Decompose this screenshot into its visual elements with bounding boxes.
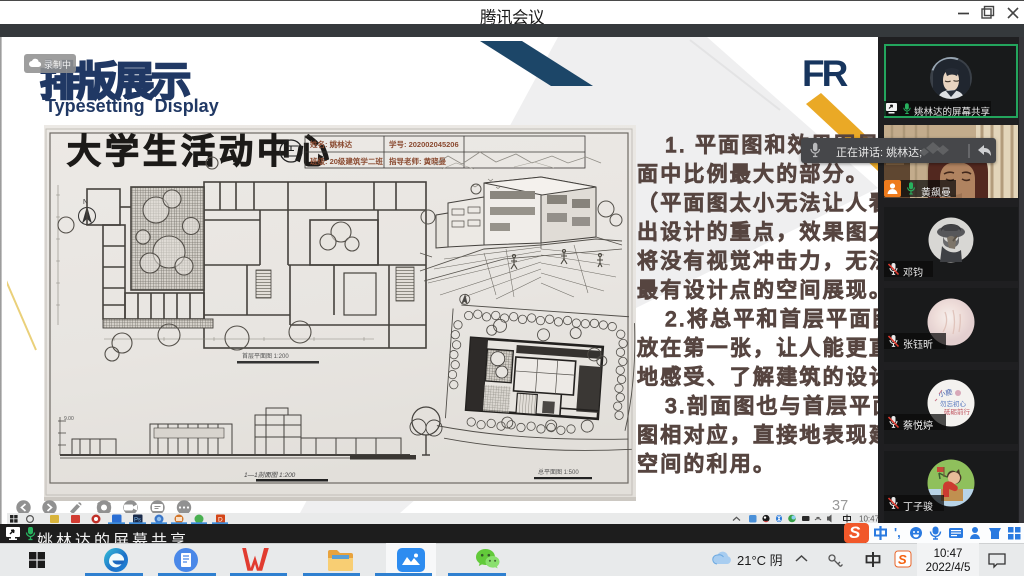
svg-text:勿忘初心: 勿忘初心 — [940, 399, 967, 408]
svg-text:2022/4/5: 2022/4/5 — [926, 562, 971, 574]
svg-text:班级: 20级建筑学二班: 班级: 20级建筑学二班 — [310, 156, 383, 166]
svg-text:学号: 202002045206: 学号: 202002045206 — [389, 139, 459, 149]
svg-text:1—1剖面图 1:200: 1—1剖面图 1:200 — [244, 471, 296, 479]
svg-text:大学生活动中心: 大学生活动中心 — [67, 132, 333, 171]
svg-text:砥砺前行: 砥砺前行 — [944, 407, 971, 416]
svg-text:S: S — [898, 552, 907, 567]
svg-text:首层平面图 1:200: 首层平面图 1:200 — [242, 352, 289, 360]
svg-text:',: ', — [894, 525, 901, 540]
svg-text:总平面图 1:500: 总平面图 1:500 — [538, 468, 579, 476]
svg-text:姓名: 姚林达: 姓名: 姚林达 — [309, 139, 353, 149]
svg-text:指导老师: 黄晓曼: 指导老师: 黄晓曼 — [389, 156, 447, 166]
svg-text:10:47: 10:47 — [934, 548, 963, 560]
svg-text:9.00: 9.00 — [64, 416, 74, 422]
svg-text:21°C 阴: 21°C 阴 — [737, 553, 783, 568]
svg-text:10:47: 10:47 — [859, 515, 878, 524]
